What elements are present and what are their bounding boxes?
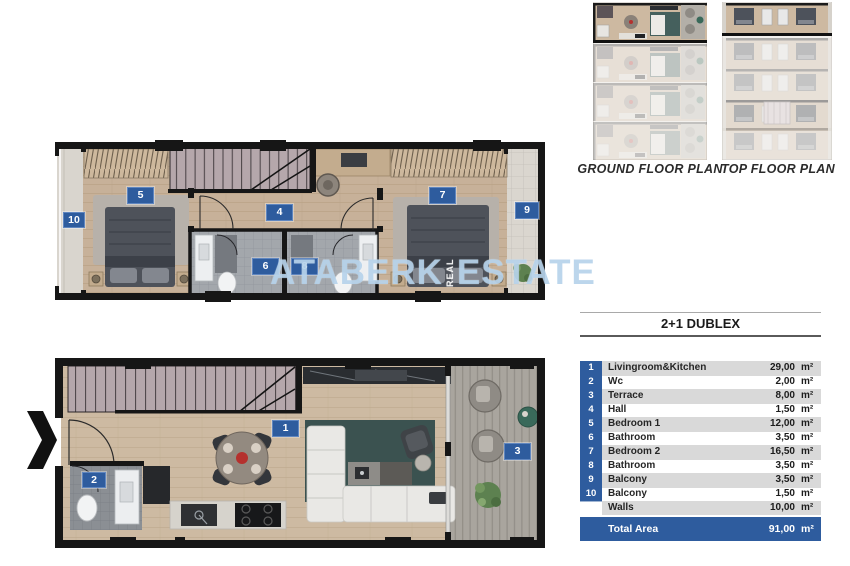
badge-bedroom-2: 7 — [429, 187, 456, 204]
row-label: Hall — [602, 403, 745, 418]
table-row: 4 Hall 1,50 m² — [580, 403, 821, 417]
tv-unit — [303, 367, 451, 384]
row-unit: m² — [795, 417, 821, 432]
row-label: Terrace — [602, 389, 745, 404]
toilet — [334, 272, 352, 294]
row-label: Walls — [602, 501, 745, 515]
total-label: Total Area — [602, 517, 745, 541]
side-table — [415, 455, 431, 471]
row-label: Balcony — [602, 487, 745, 502]
area-table: 2+1 DUBLEX 1 Livingroom&Kitchen 29,00 m²… — [580, 312, 821, 541]
row-number: 5 — [580, 417, 602, 432]
row-value: 3,50 — [745, 459, 795, 474]
row-unit: m² — [795, 431, 821, 446]
toilet — [218, 272, 236, 294]
row-label: Bathroom — [602, 431, 745, 446]
row-value: 8,00 — [745, 389, 795, 404]
ground-floor-thumbnail — [593, 2, 707, 160]
row-number: 1 — [580, 361, 602, 376]
row-number: 10 — [580, 487, 602, 502]
table-row: 6 Bathroom 3,50 m² — [580, 431, 821, 445]
badge-bathroom-8: 8 — [291, 258, 318, 275]
row-value: 3,50 — [745, 473, 795, 488]
row-unit: m² — [795, 473, 821, 488]
table-total-row: Total Area 91,00 m² — [580, 517, 821, 541]
floorplan-page: 10 5 4 6 8 7 9 1 2 3 ATABERK REAL ESTATE — [0, 0, 850, 566]
badge-livingroom: 1 — [272, 420, 299, 437]
wardrobe-left — [84, 149, 168, 178]
row-label: Wc — [602, 375, 745, 390]
table-row: 5 Bedroom 1 12,00 m² — [580, 417, 821, 431]
row-unit: m² — [795, 361, 821, 376]
table-title: 2+1 DUBLEX — [580, 312, 821, 337]
badge-bedroom-1: 5 — [127, 187, 154, 204]
cabinet — [143, 466, 170, 504]
badge-bathroom-6: 6 — [252, 258, 279, 275]
ground-floor-plan — [55, 358, 545, 548]
total-value: 91,00 — [745, 517, 795, 541]
stairs-ground-floor — [68, 366, 302, 414]
shower — [215, 235, 237, 273]
row-unit: m² — [795, 445, 821, 460]
badge-hall: 4 — [266, 204, 293, 221]
stairs-top-floor — [168, 148, 312, 193]
badge-balcony-10: 10 — [63, 212, 85, 228]
table-row: Walls 10,00 m² — [580, 501, 821, 515]
living-area — [305, 420, 455, 522]
terrace-divider — [445, 366, 451, 542]
row-value: 3,50 — [745, 431, 795, 446]
row-label: Livingroom&Kitchen — [602, 361, 745, 376]
row-label: Bedroom 2 — [602, 445, 745, 460]
terrace-plant — [475, 482, 501, 508]
pillow — [142, 268, 169, 283]
row-value: 29,00 — [745, 361, 795, 376]
table-spacer — [580, 337, 821, 361]
row-unit: m² — [795, 501, 821, 515]
row-unit: m² — [795, 389, 821, 404]
row-unit: m² — [795, 459, 821, 474]
table-row: 7 Bedroom 2 16,50 m² — [580, 445, 821, 459]
row-value: 12,00 — [745, 417, 795, 432]
row-number: 7 — [580, 445, 602, 460]
row-number — [580, 501, 602, 515]
row-number: 3 — [580, 389, 602, 404]
row-unit: m² — [795, 487, 821, 502]
table-row: 9 Balcony 3,50 m² — [580, 473, 821, 487]
terrace-table — [518, 407, 538, 427]
total-number-spacer — [580, 517, 602, 541]
pillow — [110, 268, 137, 283]
row-value: 10,00 — [745, 501, 795, 515]
table-row: 1 Livingroom&Kitchen 29,00 m² — [580, 361, 821, 375]
table-row: 3 Terrace 8,00 m² — [580, 389, 821, 403]
pillow — [451, 268, 483, 283]
badge-terrace: 3 — [504, 443, 531, 460]
row-value: 16,50 — [745, 445, 795, 460]
row-number: 2 — [580, 375, 602, 390]
table-rows: 1 Livingroom&Kitchen 29,00 m² 2 Wc 2,00 … — [580, 361, 821, 515]
row-label: Bedroom 1 — [602, 417, 745, 432]
table-row: 8 Bathroom 3,50 m² — [580, 459, 821, 473]
bedroom-2 — [391, 197, 506, 287]
top-floor-thumbnail — [722, 2, 832, 160]
row-number: 6 — [580, 431, 602, 446]
row-number: 9 — [580, 473, 602, 488]
wardrobe-right — [391, 149, 507, 177]
pillow — [413, 268, 445, 283]
top-floor-plan — [55, 140, 545, 302]
badge-wc: 2 — [82, 472, 106, 488]
row-label: Bathroom — [602, 459, 745, 474]
table-row: 10 Balcony 1,50 m² — [580, 487, 821, 501]
row-label: Balcony — [602, 473, 745, 488]
badge-balcony-9: 9 — [515, 202, 539, 219]
row-value: 1,50 — [745, 487, 795, 502]
row-unit: m² — [795, 375, 821, 390]
row-value: 2,00 — [745, 375, 795, 390]
row-unit: m² — [795, 403, 821, 418]
stove — [235, 503, 281, 527]
bathrooms — [190, 230, 377, 296]
total-unit: m² — [795, 517, 821, 541]
top-floor-thumbnail-label: TOP FLOOR PLAN — [714, 162, 842, 180]
sofa-cushion — [429, 492, 447, 504]
dining-set — [211, 431, 273, 486]
entrance-arrow-icon — [26, 410, 58, 470]
toilet — [77, 495, 97, 521]
row-number: 4 — [580, 403, 602, 418]
row-number: 8 — [580, 459, 602, 474]
table-row: 2 Wc 2,00 m² — [580, 375, 821, 389]
row-value: 1,50 — [745, 403, 795, 418]
ground-floor-thumbnail-label: GROUND FLOOR PLAN — [576, 162, 724, 180]
kitchen-counter — [170, 501, 286, 529]
